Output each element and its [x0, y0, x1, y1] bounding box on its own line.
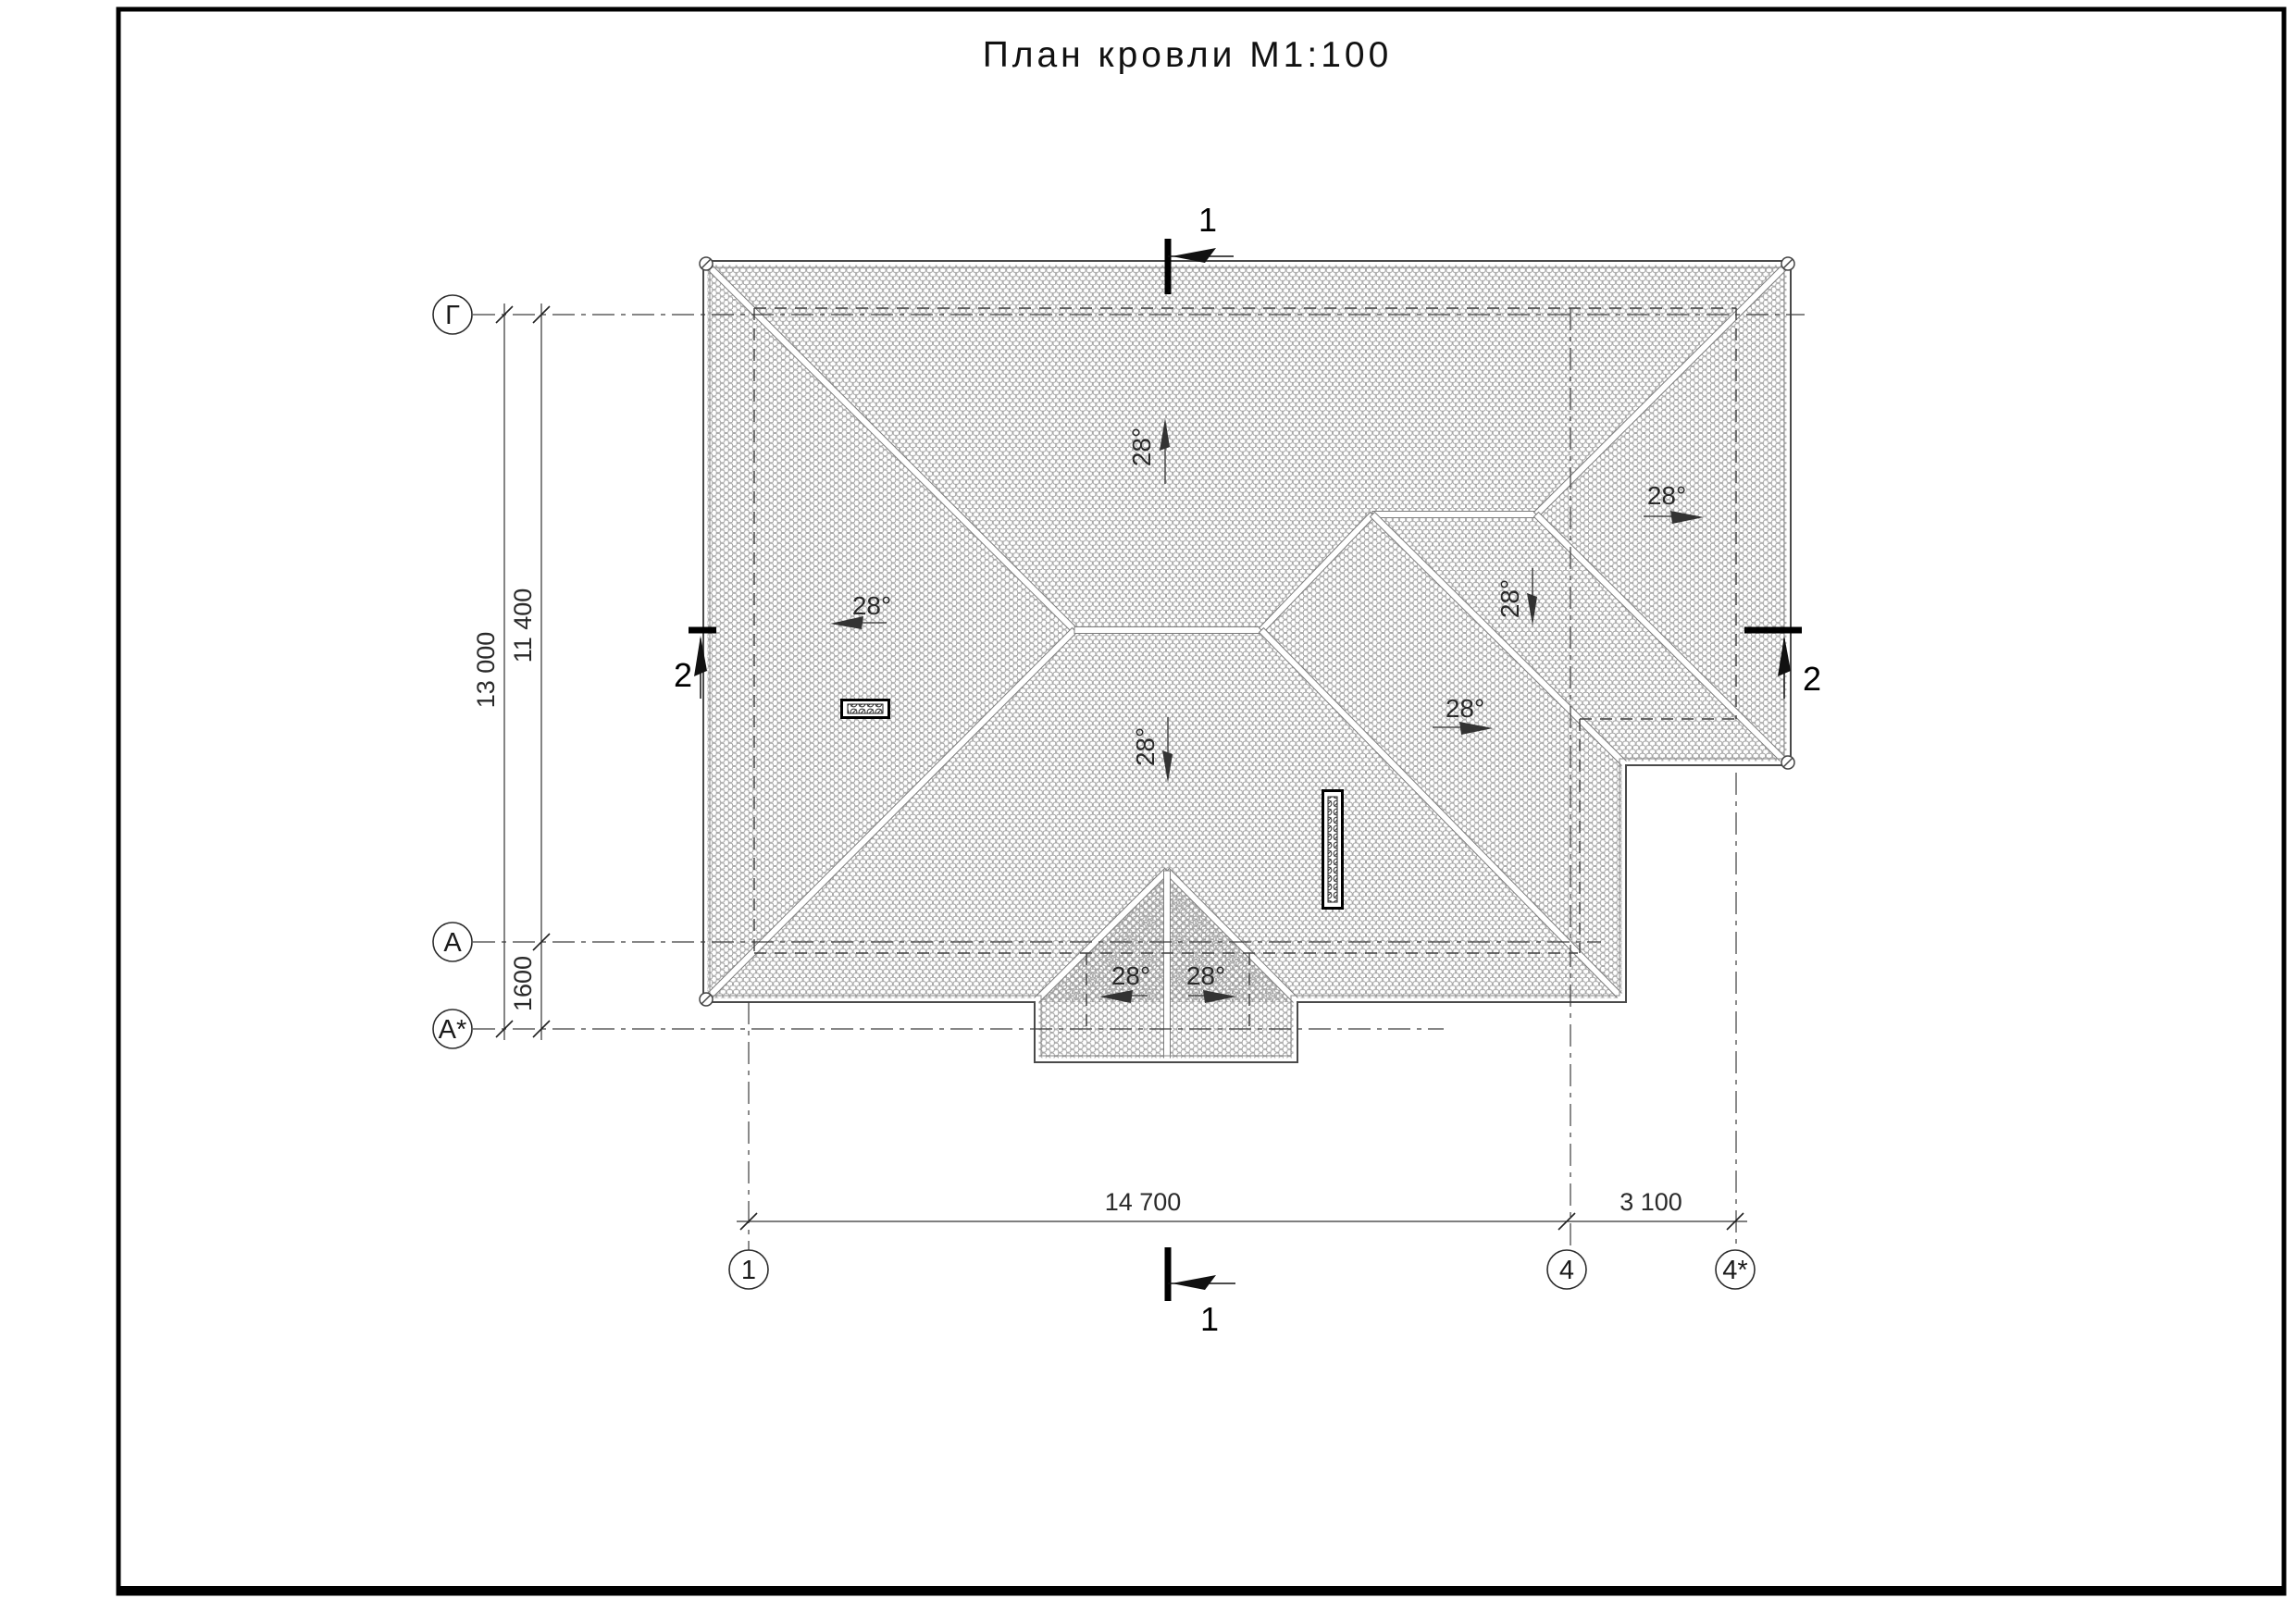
grid-marker-4: 4 [1547, 1250, 1586, 1289]
chimney-horizontal [842, 700, 889, 718]
slope-label: 28° [1127, 427, 1156, 466]
drain-icon [700, 257, 713, 270]
grid-label: Г [445, 301, 460, 330]
section-label: 2 [674, 656, 692, 694]
section-label: 2 [1803, 660, 1821, 698]
grid-marker-Astar: А* [433, 1010, 472, 1048]
slope-label: 28° [1446, 694, 1484, 723]
grid-marker-G: Г [433, 295, 472, 334]
drain-icon [1781, 257, 1794, 270]
dim-text-13000: 13 000 [472, 632, 500, 709]
section-label: 1 [1200, 1300, 1219, 1338]
ridge-right-wing [1372, 512, 1536, 518]
grid-label: А* [439, 1015, 467, 1045]
grid-marker-1: 1 [729, 1250, 768, 1289]
border-bottom-band [118, 1586, 2284, 1595]
dim-text-1600: 1600 [509, 956, 537, 1011]
slope-label: 28° [852, 591, 891, 620]
section-1-bottom: 1 [1165, 1247, 1236, 1338]
grid-label: А [443, 928, 462, 958]
slope-label: 28° [1111, 961, 1150, 990]
slope-label: 28° [1647, 481, 1686, 510]
drawing-title: План кровли М1:100 [983, 35, 1393, 75]
dim-text-14700: 14 700 [1105, 1188, 1182, 1216]
grid-label: 4* [1722, 1256, 1747, 1285]
porch-ridge [1164, 871, 1171, 1062]
drain-icon [1781, 756, 1794, 769]
grid-label: 1 [741, 1256, 756, 1285]
grid-marker-A: А [433, 923, 472, 961]
chimney-vertical [1323, 791, 1343, 909]
grid-marker-4star: 4* [1716, 1250, 1755, 1289]
roof-plan-svg: 28° 28° 28° 28° 28° 28° [0, 0, 2296, 1623]
section-arrow-icon [1172, 1275, 1216, 1290]
drain-icon [700, 993, 713, 1006]
slope-label: 28° [1131, 727, 1160, 766]
section-label: 1 [1198, 201, 1217, 239]
dim-text-11400: 11 400 [509, 588, 537, 663]
slope-label: 28° [1186, 961, 1225, 990]
grid-label: 4 [1559, 1256, 1574, 1285]
ridge-main [1074, 627, 1261, 634]
dim-text-3100: 3 100 [1620, 1188, 1682, 1216]
roof-plan-drawing: 28° 28° 28° 28° 28° 28° [0, 0, 2296, 1623]
slope-label: 28° [1496, 579, 1524, 618]
